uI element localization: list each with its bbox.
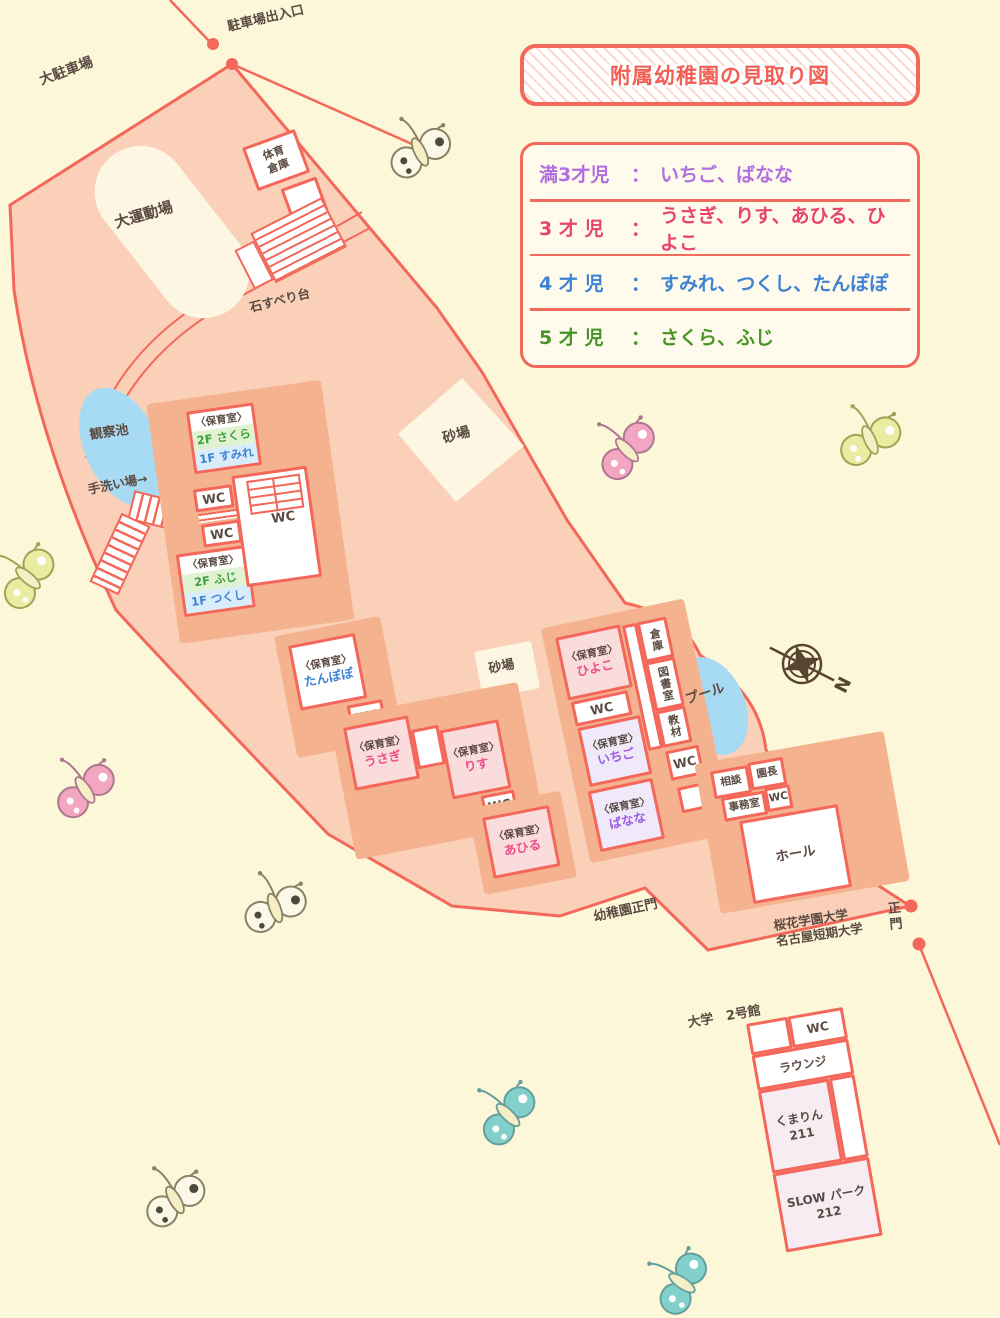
butterfly-pink-icon xyxy=(56,755,115,820)
butterfly-cream-icon xyxy=(144,1163,207,1231)
parking-gate-dot xyxy=(207,38,219,50)
legend-row-age3under: 満3才児 ： いちご、ばなな xyxy=(523,147,917,199)
consult-room-label: 相談 xyxy=(720,775,743,790)
kindergarten-map: N 体育倉庫 〈保育室〉 2F さくら 1F すみれ WC WC 〈保育室〉 2… xyxy=(0,0,1000,1318)
room-name-risu: りす xyxy=(463,755,491,776)
room-ahiru-cluster: 〈保育室〉 あひる xyxy=(482,805,563,881)
legend-row-age3: 3 才 児 ： うさぎ、りす、あひる、ひよこ xyxy=(523,202,917,254)
wc-label: WC xyxy=(672,754,697,772)
butterfly-yellow-icon xyxy=(0,540,61,611)
legend-class-names: さくら、ふじ xyxy=(660,323,774,350)
butterfly-cream-icon xyxy=(240,868,311,943)
map-title: 附属幼稚園の見取り図 xyxy=(610,60,830,90)
legend-age-label: 5 才 児 xyxy=(539,323,629,350)
gym-storage-label: 体育倉庫 xyxy=(260,143,292,177)
hall-label: ホール xyxy=(774,843,816,865)
wc-box: WC xyxy=(764,784,794,812)
wc-label: WC xyxy=(805,1018,830,1038)
building-west-cluster: 〈保育室〉 2F さくら 1F すみれ WC WC 〈保育室〉 2F ふじ 1F… xyxy=(178,394,347,627)
legend-colon: ： xyxy=(631,214,650,241)
room-hiyoko: 〈保育室〉 ひよこ xyxy=(555,624,633,700)
class-legend: 満3才児 ： いちご、ばなな 3 才 児 ： うさぎ、りす、あひる、ひよこ 4 … xyxy=(520,142,920,368)
east-fence-line xyxy=(920,947,1000,1145)
room-usagi: 〈保育室〉 うさぎ xyxy=(343,715,420,790)
office-hall-cluster: 相談 園長 事務室 WC ホール xyxy=(708,749,864,910)
slow-park-number: 212 xyxy=(815,1202,842,1222)
wc-label: WC xyxy=(209,525,234,542)
room-ahiru: 〈保育室〉 あひる xyxy=(482,805,561,879)
butterfly-pink-icon xyxy=(596,414,657,481)
legend-colon: ： xyxy=(631,323,650,350)
compass-north-label: N xyxy=(829,673,855,696)
wc-label: WC xyxy=(271,509,297,527)
wc-label: WC xyxy=(768,791,789,806)
room-sakura-sumire: 〈保育室〉 2F さくら 1F すみれ xyxy=(186,402,262,474)
office-room-label: 事務室 xyxy=(728,798,761,815)
main-gate-label: 正門 xyxy=(882,900,902,934)
univ-gate-dot-2 xyxy=(913,938,926,951)
parking-fence-line xyxy=(170,0,209,41)
univ-gate-dot-1 xyxy=(905,900,918,913)
hall-box: ホール xyxy=(739,804,852,904)
room-risu: 〈保育室〉 りす xyxy=(439,719,511,799)
legend-row-age5: 5 才 児 ： さくら、ふじ xyxy=(523,311,917,363)
compass-icon: N xyxy=(757,622,864,714)
butterfly-teal-icon xyxy=(646,1243,717,1318)
legend-row-age4: 4 才 児 ： すみれ、つくし、たんぽぽ xyxy=(523,256,917,308)
map-title-box: 附属幼稚園の見取り図 xyxy=(520,44,920,106)
cubby-shelves xyxy=(246,473,304,515)
univ-room-slow-box: SLOW パーク 212 xyxy=(772,1157,882,1253)
building-east-cluster: 〈保育室〉 ひよこ WC 〈保育室〉 いちご 〈保育室〉 ばなな 倉庫 図書室 … xyxy=(555,613,716,836)
legend-colon: ： xyxy=(631,269,650,296)
legend-class-names: うさぎ、りす、あひる、ひよこ xyxy=(660,201,901,255)
grounds-corner-dot xyxy=(226,58,238,70)
legend-age-label: 4 才 児 xyxy=(539,269,629,296)
room-tanpopo: 〈保育室〉 たんぽぽ xyxy=(288,633,367,711)
legend-colon: ： xyxy=(631,160,650,187)
legend-age-label: 3 才 児 xyxy=(539,214,629,241)
kumarin-number: 211 xyxy=(788,1124,815,1144)
butterfly-teal-icon xyxy=(476,1078,539,1146)
wc-label: WC xyxy=(201,490,226,507)
wc-block: WC xyxy=(231,466,322,587)
butterfly-yellow-icon xyxy=(837,401,905,474)
wc-label: WC xyxy=(589,699,614,717)
legend-age-label: 満3才児 xyxy=(539,160,629,187)
legend-class-names: いちご、ばなな xyxy=(660,160,793,187)
butterfly-cream-icon xyxy=(388,114,455,185)
lounge-label: ラウンジ xyxy=(778,1053,828,1077)
principal-room-label: 園長 xyxy=(756,766,779,781)
legend-class-names: すみれ、つくし、たんぽぽ xyxy=(660,269,888,296)
